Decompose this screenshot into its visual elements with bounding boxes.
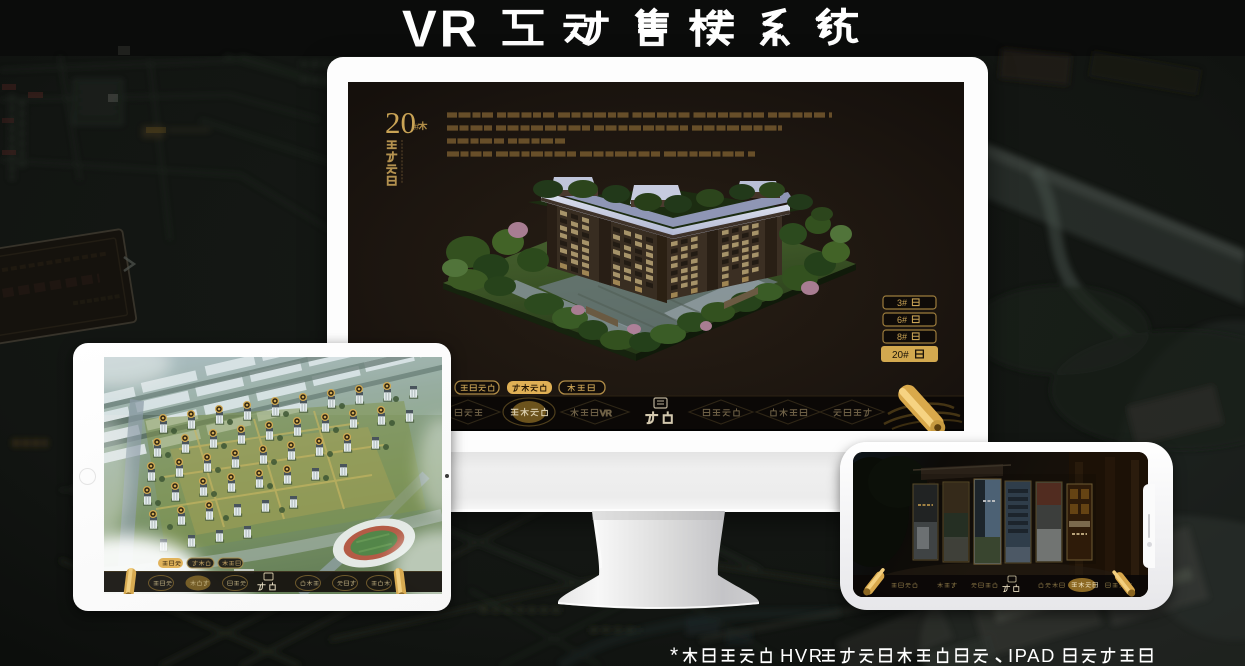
- svg-text:*: *: [670, 644, 678, 666]
- svg-text:3#: 3#: [897, 298, 907, 308]
- svg-text:6#: 6#: [897, 315, 907, 325]
- svg-text:VR: VR: [402, 1, 480, 56]
- svg-text:HVR: HVR: [780, 645, 824, 666]
- svg-text:VR: VR: [600, 408, 612, 418]
- svg-text:#: #: [414, 122, 419, 132]
- svg-text:8#: 8#: [897, 332, 907, 342]
- svg-text:20: 20: [385, 105, 416, 140]
- svg-text:20#: 20#: [892, 350, 909, 361]
- svg-text:IPAD: IPAD: [1008, 645, 1056, 666]
